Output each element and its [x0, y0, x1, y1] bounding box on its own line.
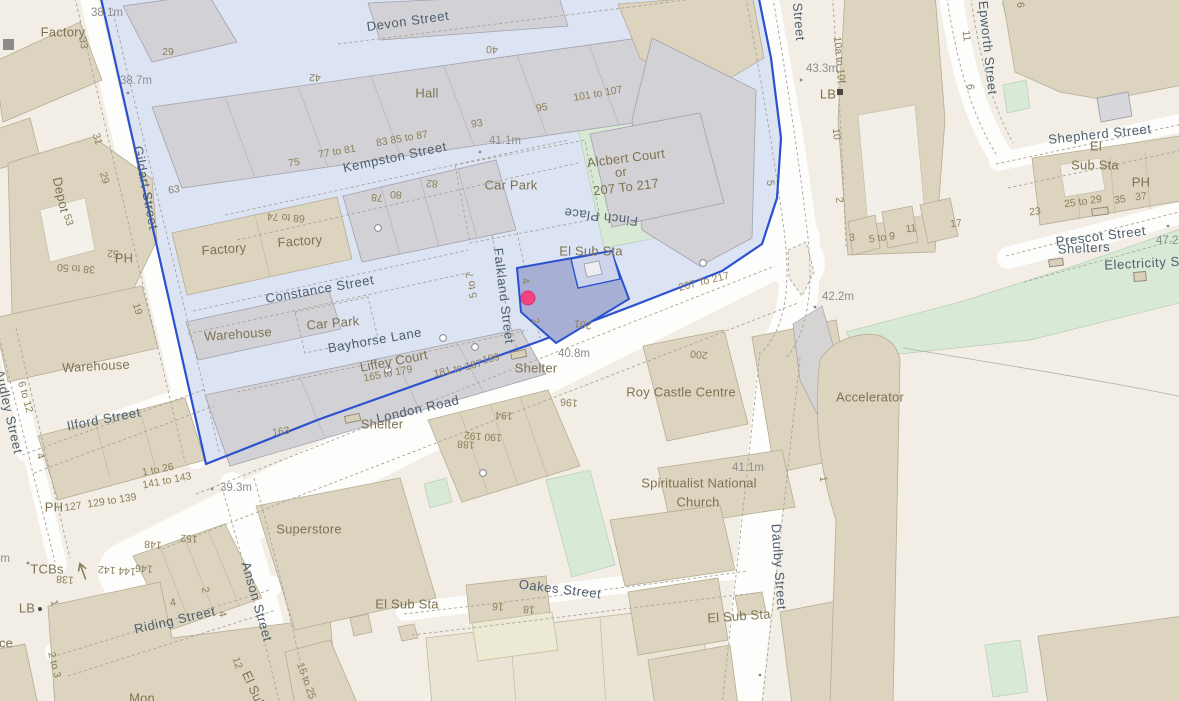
building-number-label: 95 — [535, 101, 549, 115]
place-label: El — [1090, 138, 1102, 153]
building-number-label: 82 — [426, 177, 439, 190]
building-number-label: 40 — [485, 43, 498, 56]
place-label: or — [614, 164, 628, 180]
spot-height-label: 47.2m — [1156, 235, 1179, 247]
selected-location-marker[interactable] — [521, 291, 535, 305]
building-number-label: 127 — [63, 500, 82, 514]
building-number-label: 93 — [470, 117, 484, 131]
building-number-label: 33 — [76, 36, 90, 50]
building-number-label: 52 — [107, 247, 120, 260]
building-number-label: 16 — [492, 600, 505, 613]
place-label: PH — [1132, 174, 1150, 189]
place-label: Car Park — [485, 177, 538, 192]
spot-height-label: 41.1m — [732, 462, 764, 474]
building-number-label: 146 — [135, 562, 153, 575]
place-label: Church — [676, 494, 719, 509]
place-label: El Sub Sta — [559, 243, 623, 258]
lb-dot-icon — [38, 607, 42, 611]
spot-height-label: 41.1m — [489, 135, 521, 147]
place-label: Spiritualist National — [641, 475, 756, 490]
building-number-label: 63 — [167, 183, 180, 197]
map-viewport[interactable]: Devon StreetKempston StreetGildart Stree… — [0, 0, 1179, 701]
place-label: Accelerator — [836, 389, 904, 404]
building-number-label: 152 — [180, 532, 198, 545]
building-number-label: 78 — [371, 191, 384, 204]
place-label: El Sub Sta — [375, 596, 439, 611]
building-number-label: 80 — [390, 188, 403, 201]
place-label: Shelter — [361, 416, 404, 431]
building-number-label: 138 — [56, 573, 74, 586]
place-label: LB — [820, 86, 836, 101]
building-number-label: 196 — [560, 396, 578, 409]
substation-building — [584, 261, 602, 277]
spot-height-label: 43.3m — [806, 63, 838, 75]
place-label: ce — [0, 635, 13, 650]
place-label: Factory — [277, 232, 323, 250]
place-label: Hall — [415, 85, 438, 100]
building-number-label: 188 — [457, 438, 475, 451]
spot-height-label: 39.3m — [220, 482, 252, 494]
building-number-label: 148 — [144, 538, 162, 551]
building-number-label: 163 — [271, 425, 290, 439]
building-number-label: 29 — [162, 46, 174, 58]
spot-height-label: 38.7m — [120, 75, 152, 87]
place-label: Shelter — [515, 360, 558, 375]
building-number-label: 194 — [495, 409, 513, 422]
building-number-label: 37 — [1135, 190, 1148, 203]
street-label: Shelters — [1057, 239, 1110, 257]
building-number-label: 11 — [960, 30, 973, 42]
map-canvas[interactable]: Devon StreetKempston StreetGildart Stree… — [0, 0, 1179, 701]
building-number-label: 10 — [830, 128, 843, 141]
place-label: Factory — [201, 240, 247, 258]
building-number-label: 18 — [523, 603, 536, 616]
spot-height-label: 38.1m — [91, 7, 123, 19]
building-number-label: 201 — [573, 317, 592, 331]
place-label: Superstore — [276, 521, 342, 536]
building-number-label: 17 — [950, 217, 963, 230]
place-label: LB — [19, 600, 35, 615]
building-number-label: 200 — [689, 347, 708, 361]
spot-height-label: 37.7m — [0, 553, 10, 565]
building-number-label: 11 — [905, 222, 917, 235]
place-label: Sub Sta — [1071, 157, 1119, 172]
building-number-label: 23 — [1029, 205, 1042, 218]
spot-height-label: 42.2m — [822, 291, 854, 303]
place-label: PH — [45, 499, 63, 514]
building-number-label: 75 — [287, 156, 301, 170]
building-number-label: 35 — [1113, 193, 1126, 207]
place-label: Mon — [129, 690, 155, 701]
place-label: Roy Castle Centre — [626, 384, 736, 399]
building-number-label: 42 — [309, 71, 322, 84]
lb-marker-icon — [837, 89, 843, 95]
spot-height-label: 40.8m — [558, 348, 590, 360]
